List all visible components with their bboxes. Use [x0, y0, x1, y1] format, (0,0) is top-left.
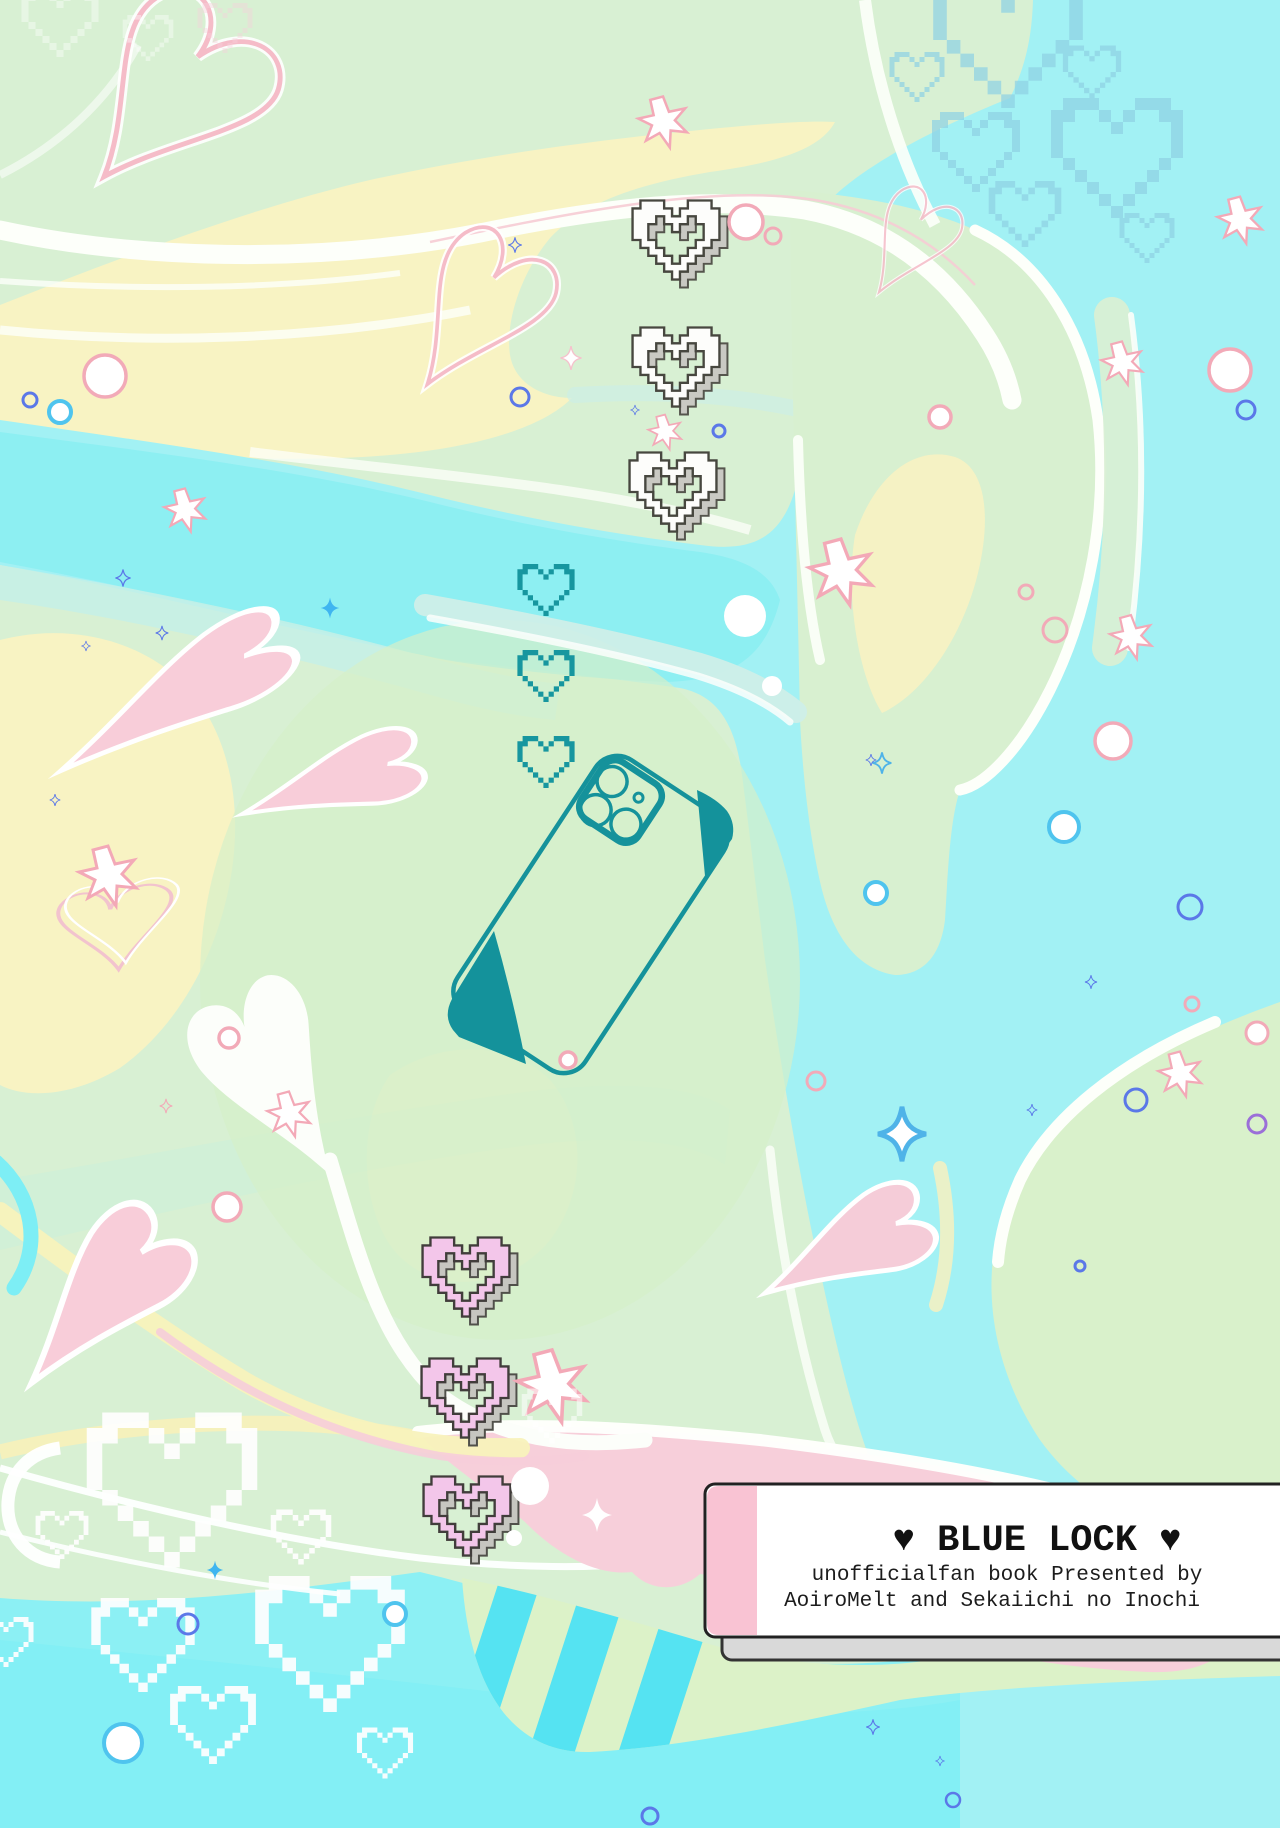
svg-text:unofficialfan book Presented b: unofficialfan book Presented by: [812, 1564, 1203, 1587]
svg-text:AoiroMelt and Sekaiichi no Ino: AoiroMelt and Sekaiichi no Inochi: [784, 1590, 1200, 1613]
svg-text:♥ BLUE LOCK ♥: ♥ BLUE LOCK ♥: [893, 1520, 1182, 1562]
